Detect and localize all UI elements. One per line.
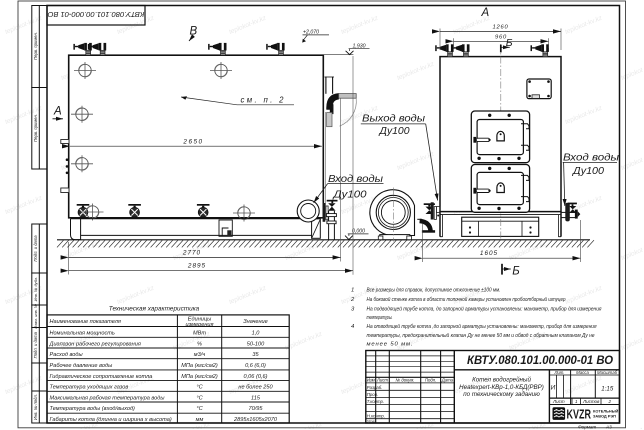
svg-text:2: 2 — [608, 399, 612, 404]
svg-text:температуры, предохранительный: температуры, предохранительный клапан Ду… — [367, 332, 596, 339]
svg-text:Вход воды: Вход воды — [328, 174, 383, 185]
svg-text:°С: °С — [196, 395, 203, 401]
svg-text:Б: Б — [506, 37, 513, 49]
svg-text:И: И — [551, 385, 556, 392]
svg-text:Формат: Формат — [578, 424, 596, 429]
svg-text:1:15: 1:15 — [601, 385, 614, 392]
svg-text:На отводящей трубе котла ,до з: На отводящей трубе котла ,до запорной ар… — [367, 323, 598, 330]
svg-text:2770: 2770 — [182, 249, 201, 256]
svg-text:Температура воды (вход/выход): Температура воды (вход/выход) — [50, 406, 136, 412]
svg-text:МВт: МВт — [193, 331, 206, 337]
svg-text:Подп. и дата: Подп. и дата — [33, 235, 38, 262]
svg-text:Пров.: Пров. — [367, 392, 378, 397]
svg-text:Перв. примен.: Перв. примен. — [33, 114, 38, 142]
svg-text:мм: мм — [196, 417, 204, 423]
svg-text:1: 1 — [351, 287, 354, 293]
svg-text:%: % — [197, 341, 202, 347]
svg-text:Все размеры для справок, допус: Все размеры для справок, допустимое откл… — [367, 287, 501, 293]
svg-text:Номинальная мощность: Номинальная мощность — [50, 331, 115, 337]
svg-text:°С: °С — [196, 406, 203, 412]
svg-text:А: А — [53, 106, 62, 118]
svg-text:Температура уходящих газов: Температура уходящих газов — [50, 385, 129, 391]
svg-text:0,06 (0,6): 0,06 (0,6) — [244, 374, 268, 380]
svg-text:Наименование показателя: Наименование показателя — [50, 319, 121, 325]
svg-text:50-100: 50-100 — [247, 341, 265, 347]
svg-text:KVZR: KVZR — [567, 407, 592, 422]
svg-text:Изм: Изм — [367, 378, 375, 383]
svg-text:На подводящей трубе котла, д: На подводящей трубе котла, до запорной а… — [367, 305, 603, 312]
svg-text:Инв. № дубл.: Инв. № дубл. — [33, 277, 38, 302]
svg-text:Расход воды: Расход воды — [50, 352, 83, 358]
svg-text:Т.контр.: Т.контр. — [367, 399, 384, 404]
svg-text:70/95: 70/95 — [249, 406, 264, 412]
svg-text:1260: 1260 — [492, 25, 508, 31]
svg-text:А3: А3 — [605, 424, 612, 429]
svg-text:Масса: Масса — [576, 370, 589, 375]
svg-text:по техническому заданию: по техническому заданию — [463, 391, 540, 398]
svg-text:Лист: Лист — [552, 399, 565, 404]
svg-text:менее 50 мм.: менее 50 мм. — [367, 342, 413, 348]
svg-text:1605: 1605 — [480, 250, 498, 257]
svg-text:2: 2 — [350, 297, 355, 303]
svg-text:Техническая характеристика: Техническая характеристика — [109, 305, 200, 312]
svg-text:Лит.: Лит. — [553, 370, 564, 375]
svg-text:Разраб.: Разраб. — [367, 385, 383, 390]
svg-text:Подп.: Подп. — [425, 378, 436, 383]
svg-text:м3/ч: м3/ч — [194, 352, 205, 358]
svg-text:№ докум.: № докум. — [396, 378, 415, 383]
svg-text:Рабочее давление воды: Рабочее давление воды — [50, 363, 113, 369]
svg-text:Значение: Значение — [243, 319, 268, 325]
svg-text:1,0: 1,0 — [252, 331, 261, 337]
svg-text:Б: Б — [512, 265, 520, 277]
svg-text:Ду100: Ду100 — [332, 190, 366, 201]
svg-text:2650: 2650 — [182, 138, 203, 145]
svg-text:На боковой стенке котла в обла: На боковой стенке котла в области топочн… — [367, 296, 567, 303]
svg-text:ЗАВОД РЭП: ЗАВОД РЭП — [593, 414, 616, 419]
svg-text:Вход воды: Вход воды — [563, 153, 619, 164]
svg-text:115: 115 — [251, 395, 261, 401]
svg-text:МПа (кгс/см2): МПа (кгс/см2) — [181, 374, 218, 380]
svg-text:Максимальная рабочая температу: Максимальная рабочая температура воды — [50, 395, 165, 401]
svg-text:Ду100: Ду100 — [572, 166, 604, 177]
svg-text:Масштаб: Масштаб — [597, 370, 618, 375]
svg-text:+2,070: +2,070 — [303, 29, 319, 35]
svg-text:КВТУ.080.101.00.000-01 ВО: КВТУ.080.101.00.000-01 ВО — [48, 10, 145, 19]
svg-text:Диапазон рабочего регулировани: Диапазон рабочего регулирования — [49, 341, 141, 347]
svg-text:температуры.: температуры. — [367, 315, 393, 321]
svg-text:2895х1605х2070: 2895х1605х2070 — [233, 417, 278, 423]
svg-text:Выход воды: Выход воды — [362, 114, 425, 125]
svg-text:Перв. примен.: Перв. примен. — [33, 32, 38, 60]
svg-text:А: А — [481, 7, 490, 19]
svg-text:Утв.: Утв. — [367, 419, 376, 424]
svg-text:Взам. инв. №: Взам. инв. № — [33, 303, 38, 328]
svg-text:не более 250: не более 250 — [238, 385, 273, 391]
svg-text:Лист: Лист — [376, 378, 388, 383]
svg-text:0,6 (6,0): 0,6 (6,0) — [245, 363, 266, 369]
svg-text:2895: 2895 — [187, 263, 206, 270]
svg-text:Дата: Дата — [441, 378, 454, 383]
svg-text:Гидравлическое сопротивление к: Гидравлическое сопротивление котла — [50, 374, 153, 380]
svg-text:измерения: измерения — [186, 322, 214, 328]
svg-text:Подп. и дата: Подп. и дата — [33, 331, 38, 358]
svg-text:°С: °С — [196, 385, 203, 391]
svg-text:35: 35 — [252, 352, 259, 358]
svg-text:Ду100: Ду100 — [378, 126, 409, 137]
svg-text:КВТУ.080.101.00.000-01 ВО: КВТУ.080.101.00.000-01 ВО — [467, 353, 613, 367]
svg-text:Габариты котла (длинна и ширин: Габариты котла (длинна и ширина х высота… — [50, 417, 172, 423]
svg-text:Heatexpert-КВр-1,0-КБД(РВР): Heatexpert-КВр-1,0-КБД(РВР) — [459, 384, 544, 391]
svg-text:Котел водогрейный: Котел водогрейный — [472, 376, 531, 383]
svg-text:Листов: Листов — [582, 399, 600, 404]
svg-text:Инв. № подл.: Инв. № подл. — [33, 394, 38, 420]
svg-text:МПа (кгс/см2): МПа (кгс/см2) — [181, 363, 218, 369]
